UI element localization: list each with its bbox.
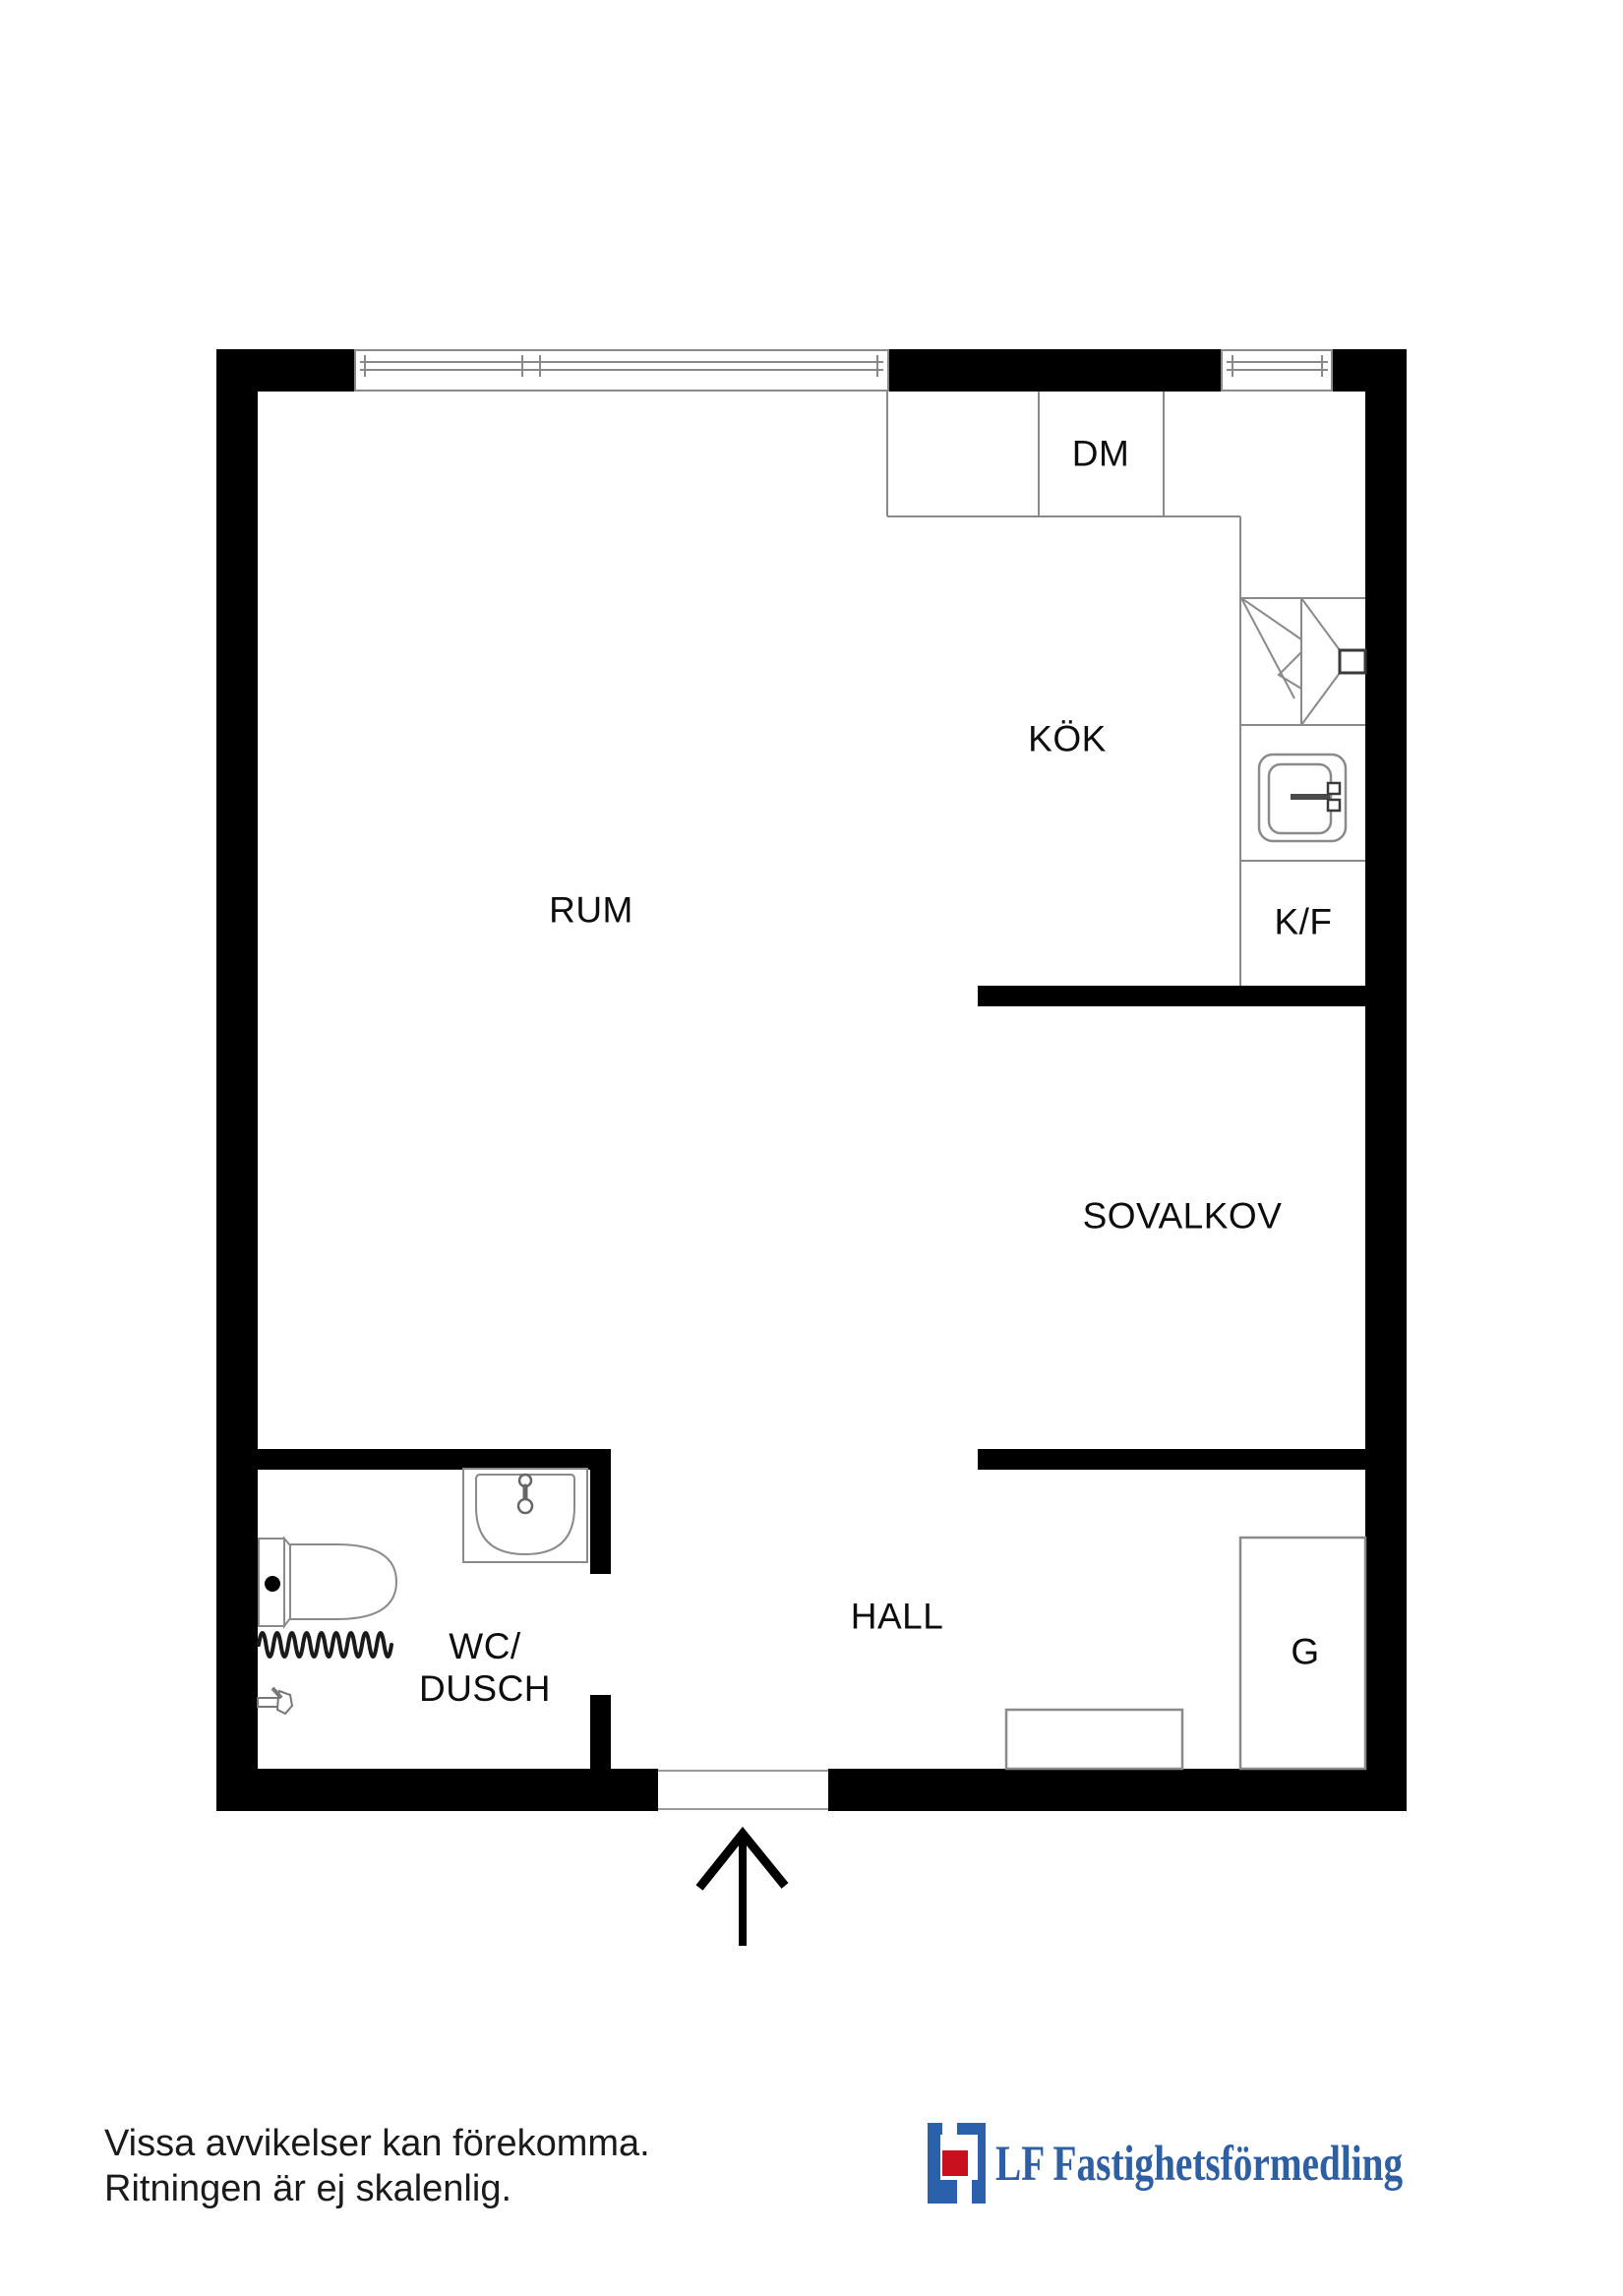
disclaimer-line2: Ritningen är ej skalenlig. — [104, 2166, 650, 2211]
label-wc-line2: DUSCH — [419, 1667, 551, 1710]
window-large-icon — [355, 350, 888, 391]
label-wardrobe: G — [1291, 1631, 1319, 1673]
kitchen-counter-outline — [887, 392, 1365, 986]
radiator-icon — [259, 1633, 391, 1657]
shower-icon — [258, 1688, 292, 1714]
entrance-opening — [658, 1771, 828, 1809]
label-sleeping-alcove: SOVALKOV — [1083, 1195, 1283, 1238]
label-hall: HALL — [851, 1596, 944, 1638]
label-wc-shower: WC/ DUSCH — [419, 1625, 551, 1710]
label-dishwasher: DM — [1072, 433, 1130, 475]
label-room: RUM — [549, 889, 633, 932]
label-fridge-freezer: K/F — [1274, 901, 1332, 943]
kitchen-sink-icon — [1259, 755, 1346, 841]
hall-cabinet-outline — [1006, 1710, 1182, 1769]
brand-logo-text: LF Fastighetsförmedling — [995, 2137, 1403, 2192]
bathroom-sink-icon — [463, 1469, 587, 1562]
disclaimer-text: Vissa avvikelser kan förekomma. Ritninge… — [104, 2121, 650, 2211]
label-wc-line1: WC/ — [419, 1625, 551, 1667]
disclaimer-line1: Vissa avvikelser kan förekomma. — [104, 2121, 650, 2166]
lf-logo-mark — [928, 2123, 986, 2204]
toilet-icon — [259, 1539, 396, 1626]
stove-icon — [1241, 598, 1365, 725]
entrance-arrow-icon — [699, 1834, 785, 1946]
label-kitchen: KÖK — [1028, 718, 1107, 760]
floorplan-drawing — [0, 0, 1623, 2296]
floorplan-page: DM KÖK RUM K/F SOVALKOV WC/ DUSCH HALL G… — [0, 0, 1623, 2296]
window-small-icon — [1222, 350, 1332, 391]
inner-walls — [216, 986, 1407, 1769]
